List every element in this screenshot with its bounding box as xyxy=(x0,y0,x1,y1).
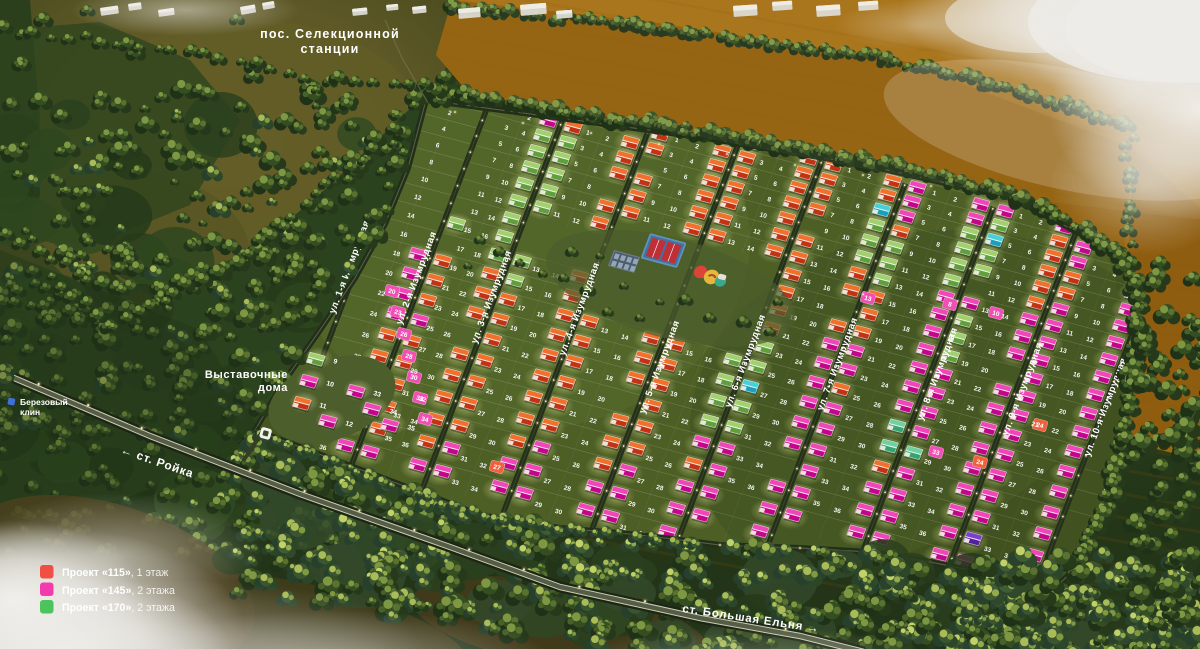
svg-text:клин: клин xyxy=(20,407,40,417)
svg-text:Березовый: Березовый xyxy=(20,397,68,407)
svg-text:станции: станции xyxy=(300,42,359,56)
svg-text:Проект «115», 1 этаж: Проект «115», 1 этаж xyxy=(62,567,169,579)
svg-text:Проект «145», 2 этажа: Проект «145», 2 этажа xyxy=(62,585,175,597)
svg-text:Проект «170», 2 этажа: Проект «170», 2 этажа xyxy=(62,602,175,614)
svg-text:дома: дома xyxy=(258,382,288,394)
svg-text:пос. Селекционной: пос. Селекционной xyxy=(260,27,400,41)
svg-text:Выставочные: Выставочные xyxy=(205,369,288,381)
